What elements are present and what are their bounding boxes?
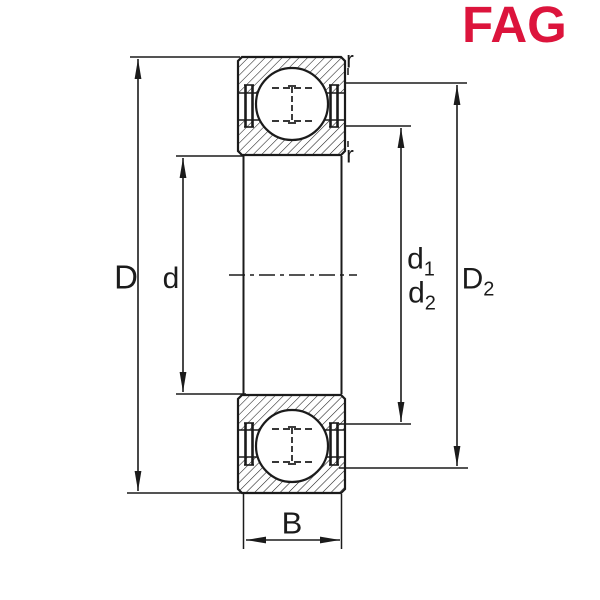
label-d2-subscript: 2 <box>425 293 436 315</box>
ball-top <box>256 68 328 140</box>
bearing-technical-drawing: FAG D d d1 d2 D2 B r r <box>0 0 600 600</box>
label-D2-base: D <box>462 263 484 296</box>
label-diameter-D2: D2 <box>462 265 495 300</box>
label-outer-diameter-D: D <box>114 261 138 294</box>
bearing-top-section <box>238 57 345 155</box>
label-width-B: B <box>282 508 303 539</box>
label-diameter-d2: d2 <box>408 279 436 314</box>
label-chamfer-r-inner: r <box>346 144 354 167</box>
label-D2-subscript: 2 <box>483 279 494 301</box>
label-chamfer-r-outer: r <box>346 49 354 72</box>
bearing-bottom-section <box>238 395 345 493</box>
label-d1-base: d <box>407 243 424 276</box>
label-d2-base: d <box>408 277 425 310</box>
label-bore-diameter-d: d <box>163 264 180 294</box>
label-diameter-d1: d1 <box>407 245 435 280</box>
label-d1-subscript: 1 <box>424 259 435 281</box>
fag-logo: FAG <box>462 2 594 48</box>
